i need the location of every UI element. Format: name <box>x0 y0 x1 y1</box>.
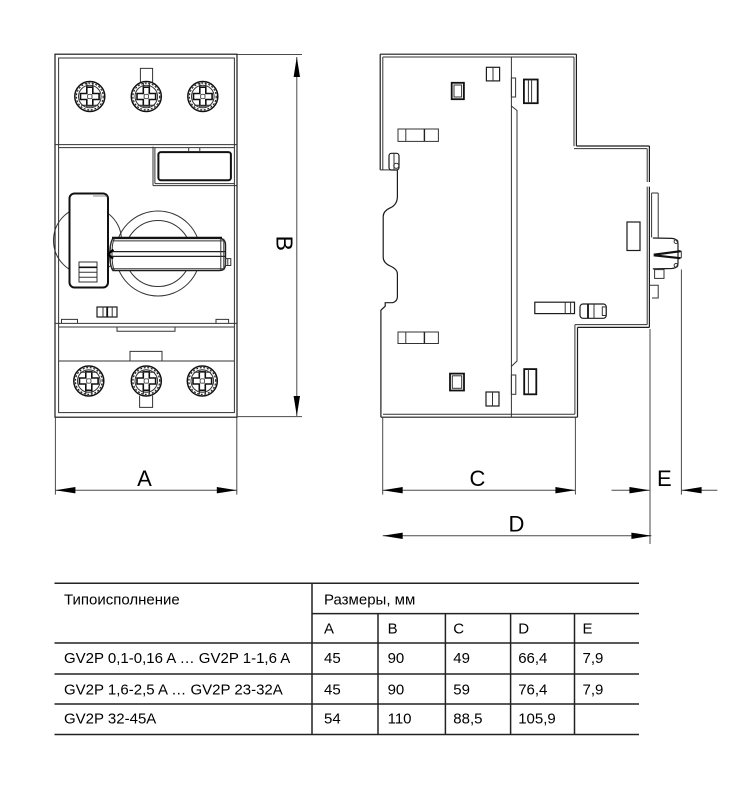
svg-text:GV2P 0,1-0,16 A … GV2P 1-1,6 A: GV2P 0,1-0,16 A … GV2P 1-1,6 A <box>64 650 290 667</box>
svg-text:45: 45 <box>324 681 341 698</box>
svg-text:A: A <box>137 466 152 491</box>
svg-text:E: E <box>657 466 672 491</box>
svg-text:45: 45 <box>324 650 341 667</box>
svg-text:88,5: 88,5 <box>453 710 482 727</box>
svg-text:76,4: 76,4 <box>518 681 547 698</box>
svg-text:7,9: 7,9 <box>583 650 604 667</box>
svg-text:B: B <box>388 621 398 638</box>
svg-text:110: 110 <box>388 710 412 727</box>
svg-text:90: 90 <box>388 681 405 698</box>
svg-text:Типоисполнение: Типоисполнение <box>64 592 180 609</box>
svg-text:D: D <box>518 621 529 638</box>
svg-text:C: C <box>453 621 464 638</box>
svg-text:E: E <box>583 621 593 638</box>
svg-text:59: 59 <box>453 681 470 698</box>
svg-text:D: D <box>509 511 525 536</box>
svg-text:Размеры, мм: Размеры, мм <box>324 592 415 609</box>
svg-text:B: B <box>271 236 297 251</box>
svg-text:7,9: 7,9 <box>583 681 604 698</box>
svg-text:GV2P 32-45A: GV2P 32-45A <box>64 710 156 727</box>
svg-text:90: 90 <box>388 650 405 667</box>
svg-text:54: 54 <box>324 710 341 727</box>
svg-text:105,9: 105,9 <box>518 710 556 727</box>
svg-text:GV2P 1,6-2,5 A … GV2P 23-32A: GV2P 1,6-2,5 A … GV2P 23-32A <box>64 681 283 698</box>
svg-text:C: C <box>470 466 486 491</box>
svg-text:49: 49 <box>453 650 470 667</box>
svg-text:66,4: 66,4 <box>518 650 547 667</box>
svg-text:A: A <box>324 621 334 638</box>
